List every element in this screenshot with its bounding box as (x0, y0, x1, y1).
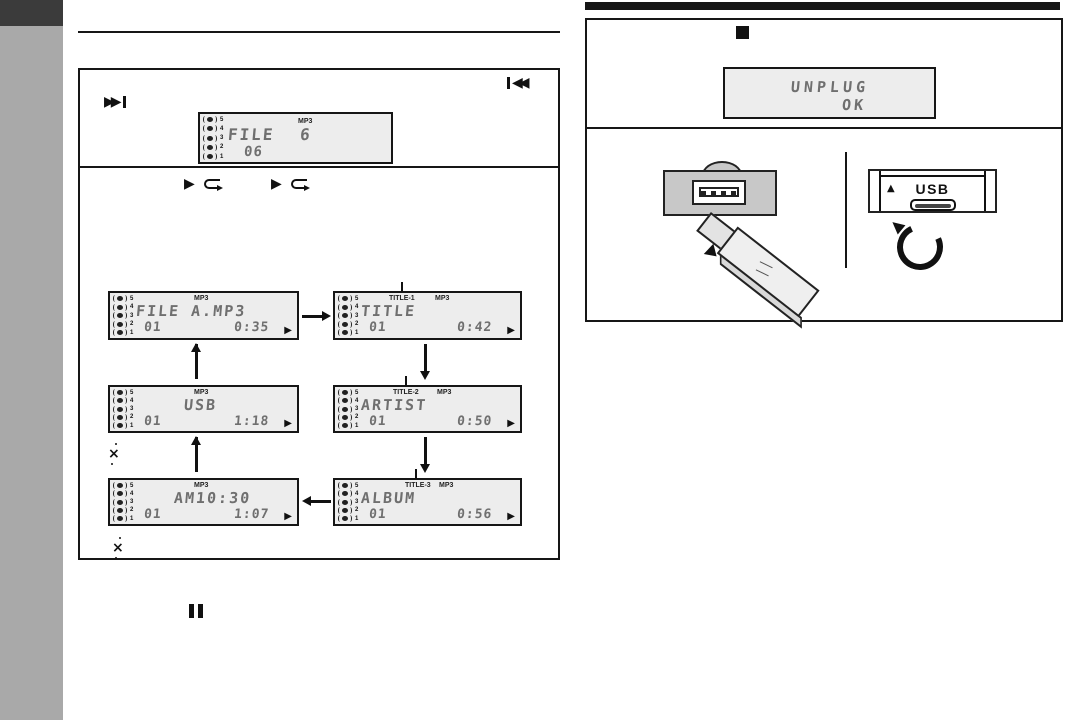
source-number: 3 (130, 499, 133, 505)
lcd-main-text: FILE 6 (227, 125, 312, 144)
mp3-indicator: MP3 (435, 295, 449, 302)
source-number: 5 (130, 390, 133, 396)
usb-label: USB (915, 181, 949, 197)
source-number: 3 (355, 406, 358, 412)
lcd-main-text: ALBUM (360, 489, 417, 507)
source-indicators: 54321 (113, 295, 133, 336)
arrow-right-icon (302, 311, 330, 322)
source-indicator: 2 (113, 321, 133, 328)
lcd-line1: UNPLUG (790, 78, 870, 96)
chapter-tab (0, 0, 63, 26)
eject-triangle-icon: ▲ (887, 184, 895, 194)
disc-icon (342, 407, 348, 412)
mp3-indicator: MP3 (194, 482, 208, 489)
play-glyph: ▶ (271, 177, 282, 191)
disc-icon (207, 154, 213, 159)
lcd-sub-text: 06 (243, 144, 263, 160)
footnote-asterisk: × (108, 447, 120, 461)
source-number: 5 (130, 296, 133, 302)
pointer-tick (405, 376, 407, 386)
lcd-main-text: USB (183, 396, 218, 414)
lcd-time: 0:56 (456, 507, 493, 522)
source-number: 3 (355, 499, 358, 505)
source-indicators: 54321 (338, 482, 358, 522)
mp3-indicator: MP3 (439, 482, 453, 489)
source-number: 3 (130, 313, 133, 319)
source-number: 2 (355, 321, 358, 327)
panel-end-cap (879, 171, 881, 211)
source-indicator: 3 (338, 406, 358, 413)
source-indicator: 1 (113, 329, 133, 336)
source-indicator: 3 (203, 135, 223, 142)
pause-icon (189, 604, 203, 618)
source-number: 2 (130, 414, 133, 420)
play-indicator-icon: ▶ (507, 512, 515, 522)
skip-back-glyph: ◀◀ (512, 76, 526, 90)
source-indicators: 54321 (113, 482, 133, 522)
panel-end-cap (984, 171, 986, 211)
disc-icon (117, 483, 123, 488)
play-indicator-icon: ▶ (284, 326, 292, 336)
panel-top-line (881, 175, 984, 177)
source-indicator: 1 (338, 329, 358, 336)
lcd-file-name: 54321 MP3 FILE A.MP3 01 0:35 ▶ (108, 291, 299, 340)
source-number: 4 (130, 491, 133, 497)
source-number: 5 (130, 483, 133, 489)
source-indicator: 1 (113, 422, 133, 429)
source-number: 4 (355, 491, 358, 497)
source-indicator: 3 (338, 499, 358, 506)
source-indicators: 54321 (338, 295, 358, 336)
source-indicator: 1 (338, 422, 358, 429)
source-indicator: 2 (338, 414, 358, 421)
source-indicator: 2 (338, 507, 358, 514)
play-indicator-icon: ▶ (507, 419, 515, 429)
lcd-time: 0:42 (456, 320, 493, 335)
source-indicator: 4 (203, 125, 223, 132)
lcd-time: 0:35 (233, 320, 270, 335)
source-number: 4 (220, 126, 223, 132)
source-number: 2 (220, 144, 223, 150)
source-indicator: 1 (113, 515, 133, 522)
source-number: 2 (355, 414, 358, 420)
disc-icon (342, 491, 348, 496)
disc-icon (117, 305, 123, 310)
source-indicator: 3 (113, 406, 133, 413)
lcd-track-number: 01 (368, 320, 387, 335)
source-number: 5 (355, 296, 358, 302)
lcd-artist: 54321 TITLE-2 MP3 ARTIST 01 0:50 ▶ (333, 385, 522, 433)
disc-icon (117, 491, 123, 496)
source-indicator: 4 (338, 490, 358, 497)
source-number: 2 (130, 321, 133, 327)
source-indicator: 5 (113, 295, 133, 302)
source-number: 3 (130, 406, 133, 412)
source-number: 1 (130, 330, 133, 336)
disc-icon (342, 330, 348, 335)
lcd-line2: OK (841, 96, 867, 114)
skip-forward-icon: ▶▶ (104, 95, 126, 109)
disc-icon (117, 500, 123, 505)
disc-icon (117, 423, 123, 428)
disc-icon (117, 398, 123, 403)
source-indicator: 3 (338, 312, 358, 319)
lcd-usb-source: 54321 MP3 USB 01 1:18 ▶ (108, 385, 299, 433)
source-indicators: 54321 (203, 116, 223, 160)
source-number: 3 (355, 313, 358, 319)
section-header-bar (585, 2, 1060, 10)
play-glyph: ▶ (184, 177, 195, 191)
disc-icon (117, 508, 123, 513)
arrow-down-icon (420, 344, 431, 379)
play-indicator-icon: ▶ (284, 419, 292, 429)
section-title-rule (78, 31, 560, 33)
disc-icon (342, 398, 348, 403)
stop-icon (736, 26, 749, 39)
disc-icon (207, 145, 213, 150)
source-indicator: 4 (338, 397, 358, 404)
arrow-left-icon (303, 496, 331, 507)
source-indicator: 5 (113, 482, 133, 489)
loop-icon (204, 179, 220, 189)
disc-icon (342, 415, 348, 420)
left-box-divider (79, 166, 559, 168)
mp3-indicator: MP3 (437, 389, 451, 396)
play-indicator-icon: ▶ (507, 326, 515, 336)
source-indicator: 2 (113, 507, 133, 514)
source-number: 1 (220, 154, 223, 160)
source-number: 1 (130, 516, 133, 522)
source-number: 5 (355, 390, 358, 396)
arrow-up-icon (191, 344, 202, 379)
disc-icon (117, 330, 123, 335)
play-repeat-icon-1: ▶ (184, 177, 220, 191)
lcd-track-number: 01 (368, 414, 387, 429)
mp3-indicator: MP3 (194, 295, 208, 302)
source-indicator: 5 (338, 482, 358, 489)
source-indicator: 5 (338, 295, 358, 302)
disc-icon (207, 136, 213, 141)
disc-icon (342, 305, 348, 310)
manual-page: ▶▶ ◀◀ 54321 MP3 FILE 6 06 ▶ ▶ 54321 MP3 … (0, 0, 1068, 720)
source-indicator: 2 (338, 321, 358, 328)
source-number: 1 (130, 423, 133, 429)
source-indicator: 2 (113, 414, 133, 421)
lcd-unplug: UNPLUG OK (723, 67, 936, 119)
lcd-clock: 54321 MP3 AM10:30 01 1:07 ▶ (108, 478, 299, 526)
source-number: 3 (220, 135, 223, 141)
usb-socket-contacts (699, 187, 739, 197)
source-indicators: 54321 (113, 389, 133, 429)
source-number: 1 (355, 423, 358, 429)
disc-icon (342, 390, 348, 395)
lcd-album: 54321 TITLE-3 MP3 ALBUM 01 0:56 ▶ (333, 478, 522, 526)
mp3-indicator: MP3 (298, 118, 312, 125)
lcd-title: 54321 TITLE-1 MP3 TITLE 01 0:42 ▶ (333, 291, 522, 340)
disc-icon (342, 423, 348, 428)
lcd-track-number: 01 (143, 507, 162, 522)
disc-icon (342, 483, 348, 488)
disc-icon (207, 117, 213, 122)
lcd-main-text: TITLE (360, 302, 417, 320)
source-indicator: 5 (203, 116, 223, 123)
source-number: 5 (355, 483, 358, 489)
source-number: 4 (355, 304, 358, 310)
source-number: 1 (355, 516, 358, 522)
source-indicator: 3 (113, 499, 133, 506)
tag-indicator: TITLE-2 (393, 389, 419, 396)
lcd-track-number: 01 (143, 414, 162, 429)
lcd-time: 0:50 (456, 414, 493, 429)
source-indicator: 2 (203, 144, 223, 151)
play-repeat-icon-2: ▶ (271, 177, 307, 191)
source-indicator: 1 (338, 515, 358, 522)
arrow-down-icon (420, 437, 431, 472)
disc-icon (342, 313, 348, 318)
disc-icon (342, 516, 348, 521)
lcd-main-text: FILE A.MP3 (135, 302, 247, 320)
mp3-indicator: MP3 (194, 389, 208, 396)
source-indicator: 4 (113, 397, 133, 404)
tag-indicator: TITLE-3 (405, 482, 431, 489)
disc-icon (342, 296, 348, 301)
source-indicator: 1 (203, 153, 223, 160)
lcd-track-number: 01 (143, 320, 162, 335)
tag-indicator: TITLE-1 (389, 295, 415, 302)
source-number: 4 (130, 304, 133, 310)
right-box-divider (586, 127, 1062, 129)
source-indicator: 4 (113, 304, 133, 311)
lcd-time: 1:18 (233, 414, 270, 429)
pointer-tick (415, 469, 417, 479)
source-indicator: 5 (113, 389, 133, 396)
arrow-up-icon (191, 437, 202, 472)
skip-forward-glyph: ▶▶ (104, 95, 118, 109)
source-number: 1 (355, 330, 358, 336)
disc-icon (117, 390, 123, 395)
lcd-main-text: AM10:30 (173, 489, 252, 507)
disc-icon (342, 500, 348, 505)
disc-icon (117, 313, 123, 318)
disc-icon (342, 322, 348, 327)
skip-back-icon: ◀◀ (507, 76, 526, 90)
source-number: 2 (130, 507, 133, 513)
source-number: 5 (220, 117, 223, 123)
disc-icon (117, 516, 123, 521)
footnote-asterisk: × (112, 541, 124, 555)
source-indicator: 5 (338, 389, 358, 396)
rotate-cover-arrow (893, 220, 943, 268)
source-indicator: 3 (113, 312, 133, 319)
play-indicator-icon: ▶ (284, 512, 292, 522)
lcd-file-search: 54321 MP3 FILE 6 06 (198, 112, 393, 164)
page-edge-sidebar (0, 0, 63, 720)
loop-icon (291, 179, 307, 189)
lcd-track-number: 01 (368, 507, 387, 522)
usb-socket (692, 180, 746, 205)
disc-icon (117, 322, 123, 327)
usb-cover-panel: ▲ USB (868, 169, 997, 213)
source-indicators: 54321 (338, 389, 358, 429)
lcd-time: 1:07 (233, 507, 270, 522)
source-number: 4 (130, 398, 133, 404)
disc-icon (207, 126, 213, 131)
source-number: 2 (355, 507, 358, 513)
disc-icon (342, 508, 348, 513)
source-number: 4 (355, 398, 358, 404)
source-indicator: 4 (113, 490, 133, 497)
pointer-tick (401, 282, 403, 292)
illustration-divider (845, 152, 847, 268)
lcd-main-text: ARTIST (360, 396, 428, 414)
cover-slot (910, 199, 956, 211)
disc-icon (117, 415, 123, 420)
disc-icon (117, 296, 123, 301)
source-indicator: 4 (338, 304, 358, 311)
disc-icon (117, 407, 123, 412)
